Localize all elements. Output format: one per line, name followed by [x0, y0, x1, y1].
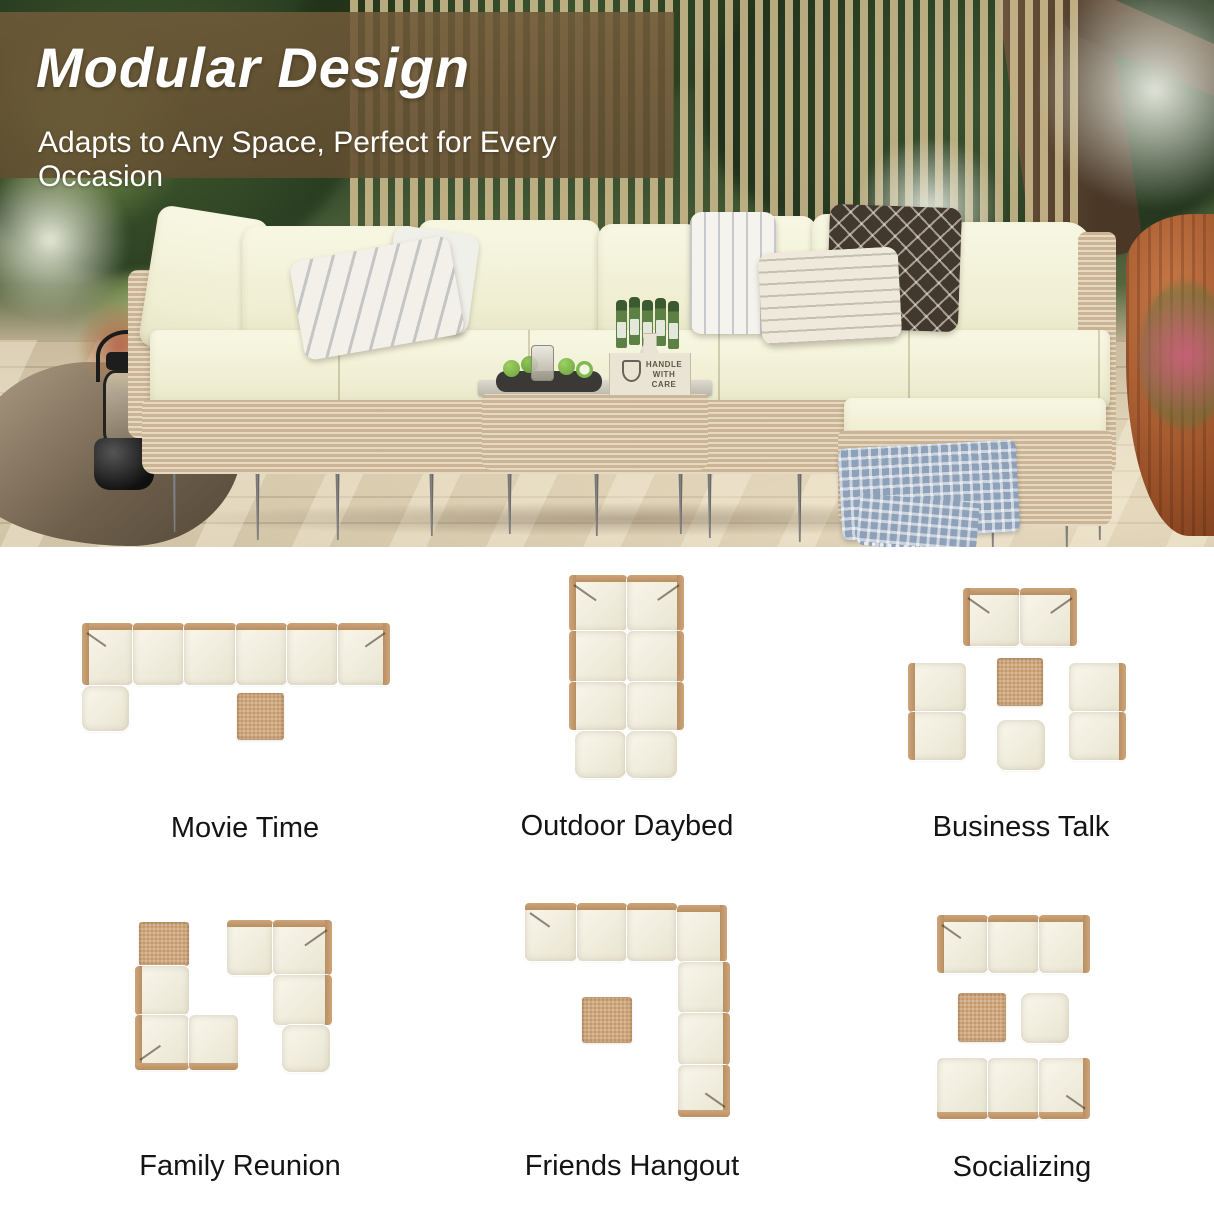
family-reunion-ottoman: [282, 1025, 330, 1072]
wicker-frame-strip: [577, 903, 627, 910]
movie-time-table: [237, 693, 284, 740]
business-talk-seat: [1069, 712, 1126, 760]
armrest-fold-line: [941, 924, 961, 939]
friends-hangout-seat: [678, 962, 730, 1013]
family-reunion-seat: [135, 1015, 189, 1070]
layout-label-movie-time: Movie Time: [171, 812, 319, 845]
business-talk-seat: [1020, 588, 1077, 646]
movie-time-seat: [236, 623, 287, 685]
movie-time-ottoman: [82, 686, 129, 731]
armrest-fold-line: [86, 632, 106, 647]
layout-label-friends-hangout: Friends Hangout: [525, 1150, 739, 1183]
wicker-frame-strip: [723, 962, 730, 1013]
diagram-layer: [0, 0, 1214, 1214]
outdoor-daybed-seat: [627, 682, 684, 730]
wicker-frame-strip: [963, 588, 1020, 595]
layout-label-outdoor-daybed: Outdoor Daybed: [521, 810, 734, 843]
wicker-frame-strip: [1020, 588, 1077, 595]
outdoor-daybed-ottoman: [575, 731, 626, 778]
wicker-frame-strip: [1083, 915, 1090, 973]
socializing-seat: [1039, 915, 1090, 973]
socializing-seat: [988, 915, 1039, 973]
armrest-fold-line: [529, 912, 550, 927]
family-reunion-seat: [135, 966, 189, 1015]
movie-time-seat: [338, 623, 390, 685]
family-reunion-table: [139, 922, 189, 966]
wicker-frame-strip: [937, 1112, 988, 1119]
layout-label-socializing: Socializing: [953, 1151, 1092, 1184]
wicker-frame-strip: [135, 966, 142, 1015]
wicker-frame-strip: [1119, 663, 1126, 712]
layout-label-business-talk: Business Talk: [933, 811, 1110, 844]
wicker-frame-strip: [678, 1110, 730, 1117]
armrest-fold-line: [573, 584, 596, 601]
movie-time-seat: [184, 623, 236, 685]
friends-hangout-seat: [627, 903, 677, 961]
family-reunion-seat: [273, 920, 332, 975]
wicker-frame-strip: [135, 1063, 189, 1070]
business-talk-seat: [908, 663, 966, 712]
family-reunion-seat: [227, 920, 273, 975]
friends-hangout-seat: [677, 905, 727, 962]
friends-hangout-seat: [577, 903, 627, 961]
product-image: HANDLE WITH CARE Modular Design Adapts t…: [0, 0, 1214, 1214]
wicker-frame-strip: [325, 975, 332, 1025]
friends-hangout-seat: [678, 1065, 730, 1117]
wicker-frame-strip: [273, 920, 332, 927]
wicker-frame-strip: [569, 575, 576, 631]
wicker-frame-strip: [677, 631, 684, 682]
outdoor-daybed-seat: [569, 682, 627, 730]
movie-time-seat: [287, 623, 338, 685]
wicker-frame-strip: [569, 682, 576, 730]
wicker-frame-strip: [525, 903, 577, 910]
wicker-frame-strip: [937, 915, 988, 922]
socializing-seat: [1039, 1058, 1090, 1119]
socializing-ottoman: [1021, 993, 1069, 1043]
friends-hangout-seat: [525, 903, 577, 961]
movie-time-seat: [82, 623, 133, 685]
outdoor-daybed-seat: [569, 631, 627, 682]
socializing-seat: [937, 915, 988, 973]
wicker-frame-strip: [569, 631, 576, 682]
friends-hangout-table: [582, 997, 632, 1043]
wicker-frame-strip: [227, 920, 273, 927]
wicker-frame-strip: [133, 623, 184, 630]
wicker-frame-strip: [627, 575, 684, 582]
wicker-frame-strip: [627, 903, 677, 910]
outdoor-daybed-ottoman: [626, 731, 677, 778]
wicker-frame-strip: [82, 623, 133, 630]
outdoor-daybed-seat: [627, 631, 684, 682]
business-talk-seat: [1069, 663, 1126, 712]
armrest-fold-line: [967, 597, 990, 614]
wicker-frame-strip: [720, 905, 727, 962]
wicker-frame-strip: [135, 1015, 142, 1070]
wicker-frame-strip: [908, 663, 915, 712]
wicker-frame-strip: [569, 575, 627, 582]
wicker-frame-strip: [236, 623, 287, 630]
wicker-frame-strip: [287, 623, 338, 630]
business-talk-ottoman: [997, 720, 1045, 770]
friends-hangout-seat: [678, 1013, 730, 1065]
movie-time-seat: [133, 623, 184, 685]
wicker-frame-strip: [189, 1063, 238, 1070]
outdoor-daybed-seat: [627, 575, 684, 631]
wicker-frame-strip: [988, 1112, 1039, 1119]
layout-label-family-reunion: Family Reunion: [139, 1150, 340, 1183]
business-talk-seat: [963, 588, 1020, 646]
socializing-seat: [937, 1058, 988, 1119]
wicker-frame-strip: [988, 915, 1039, 922]
business-talk-table: [997, 658, 1043, 706]
armrest-fold-line: [139, 1045, 160, 1061]
wicker-frame-strip: [184, 623, 236, 630]
wicker-frame-strip: [723, 1013, 730, 1065]
business-talk-seat: [908, 712, 966, 760]
socializing-seat: [988, 1058, 1039, 1119]
wicker-frame-strip: [677, 682, 684, 730]
family-reunion-seat: [273, 975, 332, 1025]
outdoor-daybed-seat: [569, 575, 627, 631]
wicker-frame-strip: [1119, 712, 1126, 760]
family-reunion-seat: [189, 1015, 238, 1070]
socializing-table: [958, 993, 1006, 1042]
wicker-frame-strip: [908, 712, 915, 760]
